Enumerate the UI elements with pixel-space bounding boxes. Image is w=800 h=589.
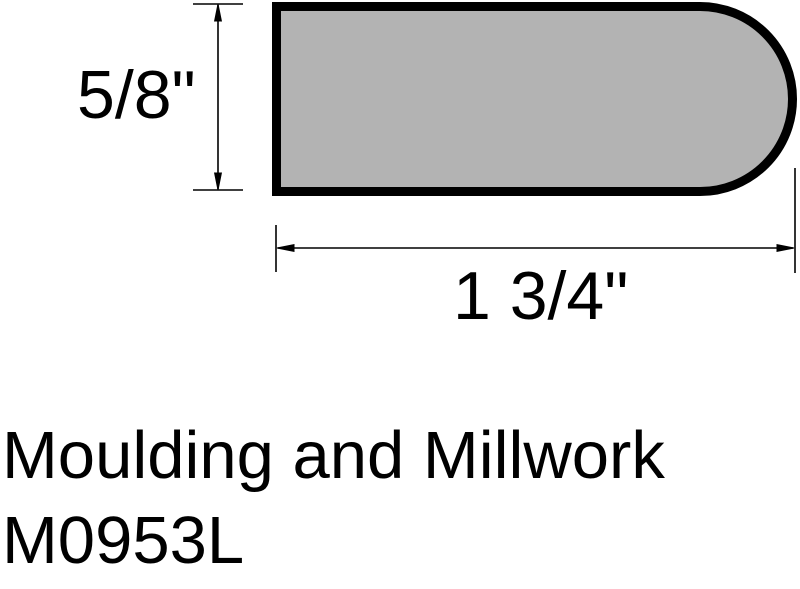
- height-dimension-label: 5/8": [77, 61, 196, 129]
- arrow-up-icon: [215, 4, 222, 21]
- moulding-profile-shape: [277, 7, 793, 192]
- arrow-left-icon: [277, 245, 294, 252]
- width-dimension-label: 1 3/4": [453, 262, 628, 330]
- model-number: M0953L: [2, 507, 244, 574]
- arrow-down-icon: [215, 173, 222, 190]
- height-dimension: [193, 4, 243, 190]
- arrow-right-icon: [777, 245, 794, 252]
- drawing-canvas: 5/8" 1 3/4" Moulding and Millwork M0953L: [0, 0, 800, 589]
- drawing-title: Moulding and Millwork: [2, 422, 665, 489]
